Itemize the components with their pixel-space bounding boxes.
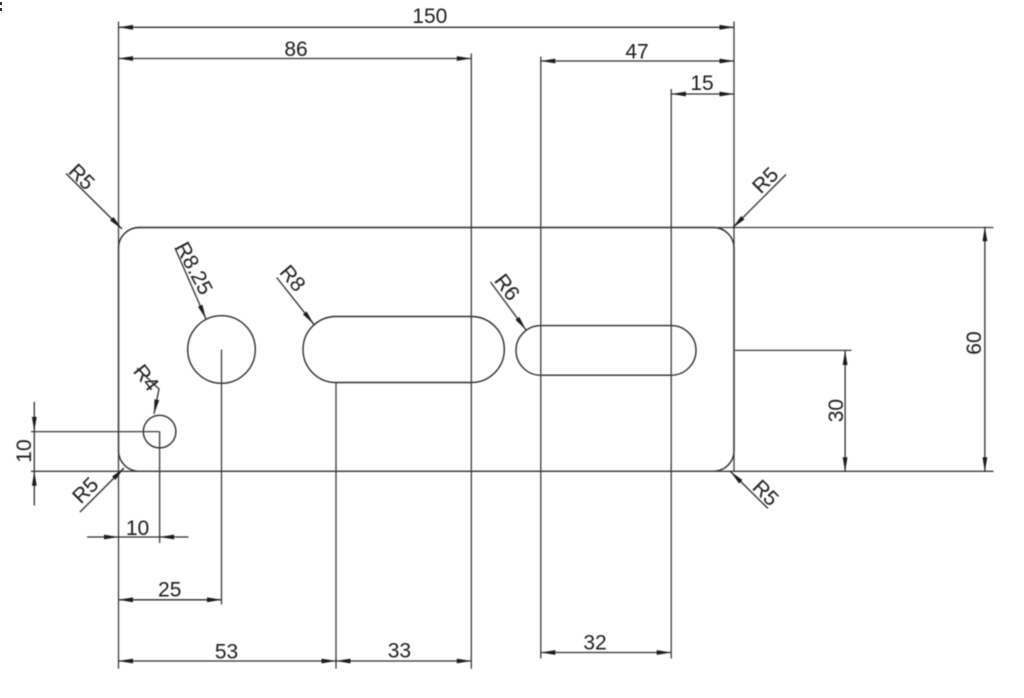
svg-text:15: 15	[690, 72, 713, 95]
svg-text:60: 60	[963, 331, 986, 354]
svg-text:30: 30	[825, 399, 848, 422]
svg-text:R5: R5	[748, 476, 783, 511]
svg-text:32: 32	[583, 632, 606, 655]
svg-text:R5: R5	[64, 160, 99, 195]
svg-text:R6: R6	[489, 270, 524, 305]
svg-text:R5: R5	[748, 163, 783, 198]
svg-text:150: 150	[412, 5, 447, 28]
svg-text:10: 10	[126, 517, 149, 540]
svg-text:33: 33	[388, 640, 411, 663]
svg-text:53: 53	[215, 641, 238, 664]
svg-text:25: 25	[158, 579, 181, 602]
svg-text:R8.25: R8.25	[170, 238, 217, 298]
svg-text:86: 86	[284, 38, 307, 61]
svg-text:R5: R5	[68, 473, 103, 508]
svg-text:47: 47	[625, 41, 648, 64]
svg-text:R8: R8	[275, 261, 310, 296]
svg-text:10: 10	[13, 439, 36, 462]
